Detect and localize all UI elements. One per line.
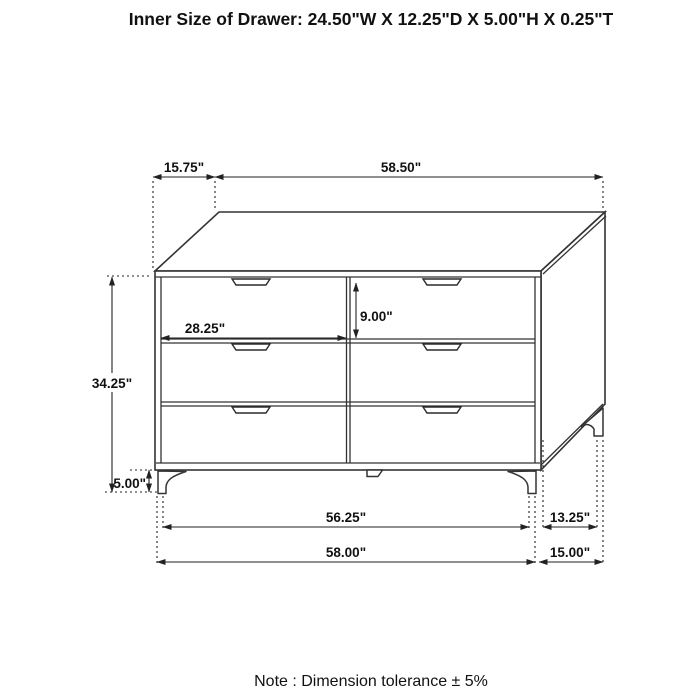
dim-label-leg-height: 5.00" (113, 476, 146, 491)
dim-label-top-width: 58.50" (381, 160, 421, 175)
dim-label-overall-width: 58.00" (326, 545, 366, 560)
dresser-drawing (155, 212, 606, 494)
dresser-front-face (155, 271, 541, 470)
drawer-handle (423, 344, 461, 350)
dim-label-drawer-height: 9.00" (360, 309, 393, 324)
dim-label-body-height: 34.25" (92, 376, 132, 391)
dresser-dimension-diagram: Inner Size of Drawer: 24.50"W X 12.25"D … (0, 0, 700, 700)
tolerance-note: Note : Dimension tolerance ± 5% (254, 673, 488, 690)
drawer-handle (232, 279, 270, 285)
front-left-leg (158, 471, 186, 494)
front-right-leg (508, 471, 536, 494)
dim-label-top-offset: 15.75" (164, 160, 204, 175)
drawer-handle (423, 279, 461, 285)
dim-label-drawer-width: 28.25" (185, 321, 225, 336)
dim-label-overall-depth: 15.00" (550, 545, 590, 560)
drawer-handle (232, 407, 270, 413)
dim-label-side-leg-span: 13.25" (550, 510, 590, 525)
dresser-top-face (155, 212, 605, 271)
diagram-canvas: Inner Size of Drawer: 24.50"W X 12.25"D … (0, 0, 700, 700)
center-leg (367, 470, 383, 477)
dim-label-front-leg-span: 56.25" (326, 510, 366, 525)
drawer-handle (423, 407, 461, 413)
drawer-handle (232, 344, 270, 350)
page-title: Inner Size of Drawer: 24.50"W X 12.25"D … (129, 9, 614, 29)
